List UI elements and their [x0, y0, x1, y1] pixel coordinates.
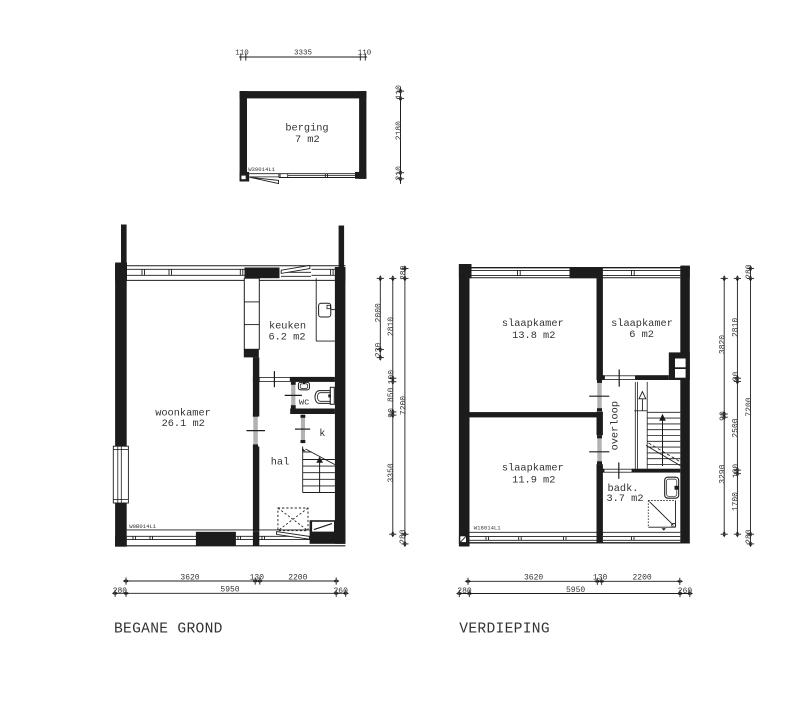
svg-text:3620: 3620 [524, 574, 543, 583]
svg-text:3820: 3820 [719, 335, 728, 354]
svg-text:W0B014L1: W0B014L1 [129, 523, 156, 530]
svg-text:3290: 3290 [719, 464, 728, 483]
svg-text:280: 280 [457, 587, 472, 596]
svg-text:k: k [319, 428, 325, 440]
svg-text:260: 260 [333, 587, 348, 596]
svg-text:130: 130 [250, 573, 265, 582]
svg-text:5950: 5950 [566, 586, 585, 595]
svg-text:130: 130 [593, 574, 608, 583]
svg-text:90: 90 [388, 408, 397, 418]
svg-text:210: 210 [395, 166, 404, 181]
svg-text:2810: 2810 [732, 318, 741, 337]
svg-text:260: 260 [678, 587, 693, 596]
svg-text:7 m2: 7 m2 [295, 134, 320, 146]
svg-text:26.1 m2: 26.1 m2 [162, 418, 205, 430]
svg-text:2200: 2200 [288, 573, 307, 582]
svg-text:6.2 m2: 6.2 m2 [268, 331, 305, 343]
svg-text:7200: 7200 [399, 396, 408, 415]
svg-text:hal: hal [271, 456, 290, 468]
svg-text:280: 280 [399, 265, 408, 280]
svg-text:3335: 3335 [294, 49, 313, 57]
svg-text:2180: 2180 [395, 121, 404, 140]
svg-text:3350: 3350 [387, 463, 396, 482]
svg-text:230: 230 [375, 343, 384, 358]
svg-text:3620: 3620 [180, 573, 199, 582]
svg-text:280: 280 [113, 587, 128, 596]
svg-text:110: 110 [235, 49, 249, 57]
svg-text:2500: 2500 [732, 418, 741, 437]
svg-text:280: 280 [745, 264, 754, 279]
svg-text:W39014L1: W39014L1 [248, 166, 275, 173]
svg-text:2810: 2810 [387, 317, 396, 336]
svg-text:overloop: overloop [609, 401, 621, 450]
svg-text:90: 90 [719, 411, 728, 421]
svg-text:110: 110 [358, 49, 372, 57]
svg-text:1700: 1700 [732, 492, 741, 511]
svg-text:6 m2: 6 m2 [629, 329, 654, 341]
svg-text:90: 90 [732, 371, 741, 381]
svg-text:100: 100 [732, 464, 741, 479]
svg-text:100: 100 [387, 370, 396, 385]
svg-text:berging: berging [285, 122, 328, 134]
svg-text:W18014L1: W18014L1 [474, 524, 501, 531]
svg-text:7200: 7200 [745, 397, 754, 416]
svg-text:2200: 2200 [632, 574, 651, 583]
svg-text:850: 850 [387, 387, 396, 402]
svg-text:2000: 2000 [375, 303, 384, 322]
svg-text:110: 110 [395, 85, 404, 100]
svg-text:slaapkamer: slaapkamer [502, 463, 564, 475]
svg-text:slaapkamer: slaapkamer [502, 318, 564, 330]
svg-text:3.7 m2: 3.7 m2 [606, 493, 643, 505]
svg-text:13.8 m2: 13.8 m2 [512, 330, 555, 342]
svg-text:wc: wc [299, 398, 310, 408]
svg-text:280: 280 [399, 529, 408, 544]
svg-text:11.9 m2: 11.9 m2 [512, 475, 555, 487]
svg-text:VERDIEPING: VERDIEPING [459, 622, 550, 638]
svg-text:280: 280 [745, 529, 754, 544]
svg-text:BEGANE GROND: BEGANE GROND [114, 622, 223, 638]
svg-text:5950: 5950 [220, 586, 239, 595]
